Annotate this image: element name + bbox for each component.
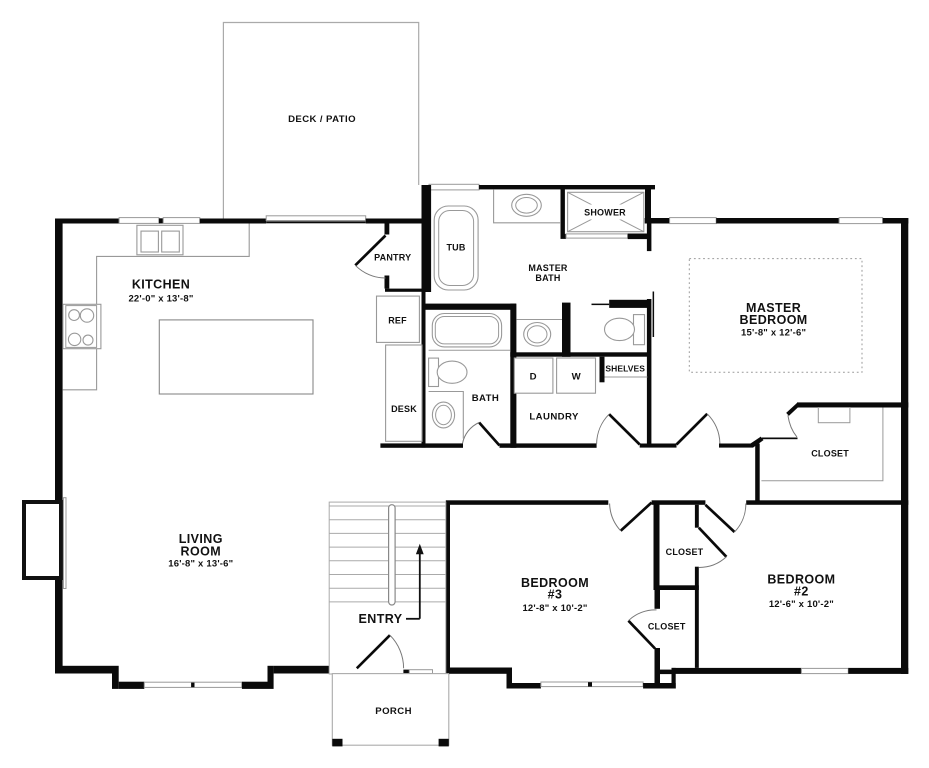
- svg-text:KITCHEN: KITCHEN: [132, 278, 190, 292]
- svg-text:TUB: TUB: [446, 243, 465, 253]
- svg-text:ROOM: ROOM: [181, 544, 222, 558]
- svg-text:REF: REF: [388, 316, 407, 326]
- svg-text:CLOSET: CLOSET: [666, 547, 704, 557]
- svg-text:CLOSET: CLOSET: [811, 449, 849, 459]
- svg-text:12'-6" x 10'-2": 12'-6" x 10'-2": [769, 599, 834, 610]
- svg-text:BATH: BATH: [535, 273, 560, 283]
- svg-text:ENTRY: ENTRY: [359, 612, 403, 626]
- svg-text:LAUNDRY: LAUNDRY: [529, 412, 579, 423]
- svg-text:12'-8" x 10'-2": 12'-8" x 10'-2": [522, 603, 587, 614]
- svg-text:#2: #2: [794, 585, 809, 599]
- svg-text:15'-8" x 12'-6": 15'-8" x 12'-6": [741, 328, 806, 339]
- svg-text:CLOSET: CLOSET: [648, 622, 686, 632]
- svg-text:PANTRY: PANTRY: [374, 253, 411, 263]
- svg-text:D: D: [530, 372, 537, 383]
- svg-text:W: W: [572, 372, 582, 383]
- svg-text:#3: #3: [548, 588, 563, 602]
- svg-text:SHOWER: SHOWER: [584, 208, 626, 218]
- svg-text:16'-8" x 13'-6": 16'-8" x 13'-6": [168, 559, 233, 570]
- svg-text:MASTER: MASTER: [528, 263, 568, 273]
- svg-text:DECK / PATIO: DECK / PATIO: [288, 114, 356, 125]
- svg-text:PORCH: PORCH: [375, 706, 412, 717]
- svg-text:SHELVES: SHELVES: [605, 364, 645, 374]
- svg-text:22'-0" x 13'-8": 22'-0" x 13'-8": [128, 294, 193, 305]
- svg-text:DESK: DESK: [391, 404, 417, 414]
- svg-text:BEDROOM: BEDROOM: [740, 313, 808, 327]
- svg-text:BATH: BATH: [472, 393, 500, 404]
